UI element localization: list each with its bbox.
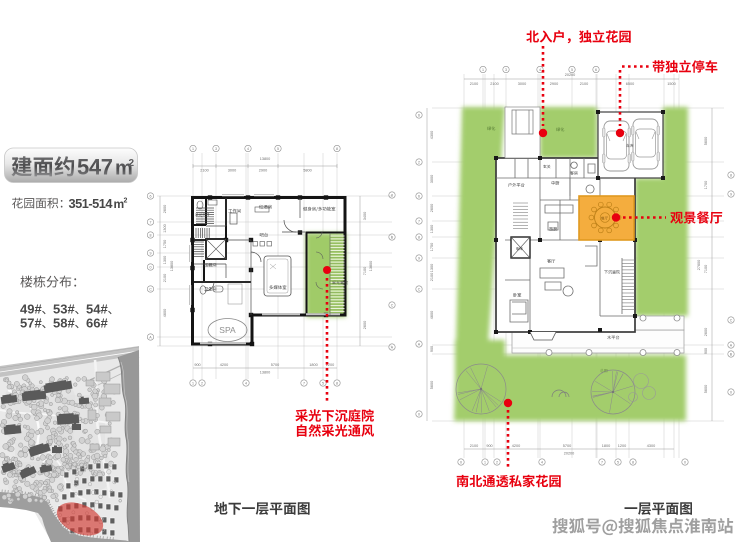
svg-text:1: 1 — [482, 68, 484, 72]
svg-text:C: C — [418, 287, 421, 291]
svg-text:C: C — [730, 318, 733, 322]
svg-text:9: 9 — [418, 256, 420, 260]
svg-text:3: 3 — [505, 68, 507, 72]
svg-text:9: 9 — [150, 251, 152, 255]
svg-text:5600: 5600 — [430, 381, 434, 389]
svg-text:27600: 27600 — [697, 260, 701, 271]
svg-text:4: 4 — [541, 460, 543, 464]
svg-text:351-514: 351-514 — [69, 196, 114, 211]
svg-text:0: 0 — [460, 460, 462, 464]
svg-text:5600: 5600 — [704, 137, 708, 145]
svg-text:8: 8 — [150, 233, 152, 237]
svg-text:5: 5 — [322, 381, 324, 385]
svg-text:2100: 2100 — [580, 82, 588, 86]
svg-text:7: 7 — [150, 220, 152, 224]
svg-text:3: 3 — [215, 147, 217, 151]
svg-text:2100: 2100 — [200, 169, 208, 173]
svg-text:6: 6 — [418, 194, 420, 198]
svg-text:1: 1 — [192, 147, 194, 151]
svg-text:4: 4 — [245, 381, 247, 385]
svg-text:13800: 13800 — [260, 157, 271, 161]
svg-text:7100: 7100 — [363, 267, 367, 275]
svg-text:4: 4 — [539, 68, 541, 72]
svg-text:66#: 66# — [86, 316, 108, 331]
svg-text:5800: 5800 — [303, 169, 311, 173]
svg-text:900: 900 — [486, 444, 492, 448]
svg-text:5: 5 — [571, 68, 573, 72]
svg-text:2900: 2900 — [259, 169, 267, 173]
svg-text:5700: 5700 — [563, 444, 571, 448]
svg-text:2600: 2600 — [363, 321, 367, 329]
svg-text:0: 0 — [730, 390, 732, 394]
svg-text:3000: 3000 — [430, 175, 434, 183]
svg-text:13800: 13800 — [369, 261, 373, 272]
svg-text:6: 6 — [418, 113, 420, 117]
svg-text:2: 2 — [129, 158, 135, 169]
svg-text:2600: 2600 — [704, 328, 708, 336]
svg-text:6500: 6500 — [626, 82, 634, 86]
svg-text:0: 0 — [418, 412, 420, 416]
svg-text:900: 900 — [430, 346, 434, 352]
svg-text:547: 547 — [77, 155, 113, 180]
svg-text:1300: 1300 — [163, 224, 167, 232]
svg-text:1300: 1300 — [430, 225, 434, 233]
svg-text:SPA: SPA — [219, 325, 236, 335]
svg-text:2100: 2100 — [490, 82, 498, 86]
svg-text:8: 8 — [336, 381, 338, 385]
svg-text:900: 900 — [194, 363, 200, 367]
svg-text:54#: 54# — [86, 302, 108, 317]
svg-text:8: 8 — [418, 235, 420, 239]
svg-text:8: 8 — [391, 193, 393, 197]
svg-text:4: 4 — [247, 147, 249, 151]
svg-text:53#: 53# — [53, 302, 75, 317]
svg-text:2100: 2100 — [470, 444, 478, 448]
svg-text:7100: 7100 — [704, 265, 708, 273]
svg-text:2: 2 — [496, 460, 498, 464]
svg-text:4200: 4200 — [220, 363, 228, 367]
svg-text:8: 8 — [336, 147, 338, 151]
svg-text:57#: 57# — [20, 316, 42, 331]
svg-text:1750: 1750 — [430, 243, 434, 251]
svg-text:3000: 3000 — [228, 169, 236, 173]
svg-text:1500: 1500 — [667, 82, 675, 86]
svg-text:3000: 3000 — [518, 82, 526, 86]
svg-text:2: 2 — [201, 381, 203, 385]
svg-text:49#: 49# — [20, 302, 42, 317]
svg-text:5: 5 — [277, 147, 279, 151]
svg-text:2: 2 — [124, 198, 128, 205]
svg-text:2: 2 — [418, 160, 420, 164]
svg-text:13800: 13800 — [170, 261, 174, 272]
svg-text:4300: 4300 — [647, 444, 655, 448]
svg-text:8: 8 — [632, 460, 634, 464]
svg-text:C: C — [391, 303, 394, 307]
svg-text:1300: 1300 — [430, 264, 434, 272]
svg-text:20200: 20200 — [564, 452, 575, 456]
svg-text:7: 7 — [601, 460, 603, 464]
svg-text:2100: 2100 — [430, 273, 434, 281]
svg-text:0: 0 — [150, 265, 152, 269]
svg-text:1800: 1800 — [309, 363, 317, 367]
svg-text:1300: 1300 — [163, 256, 167, 264]
svg-text:5600: 5600 — [704, 385, 708, 393]
svg-text:6: 6 — [150, 194, 152, 198]
svg-text:58#: 58# — [53, 316, 75, 331]
svg-text:6: 6 — [595, 68, 597, 72]
svg-text:2600: 2600 — [430, 204, 434, 212]
svg-text:4300: 4300 — [430, 131, 434, 139]
svg-text:2100: 2100 — [470, 82, 478, 86]
svg-text:1750: 1750 — [163, 240, 167, 248]
svg-text:20200: 20200 — [565, 73, 576, 77]
svg-text:2900: 2900 — [550, 82, 558, 86]
svg-text:8: 8 — [730, 173, 732, 177]
svg-text:7: 7 — [303, 381, 305, 385]
svg-text:4600: 4600 — [163, 309, 167, 317]
svg-text:1700: 1700 — [704, 181, 708, 189]
svg-text:13800: 13800 — [260, 371, 271, 375]
svg-text:C: C — [149, 287, 152, 291]
svg-text:1: 1 — [484, 460, 486, 464]
svg-text:900: 900 — [704, 348, 708, 354]
svg-text:1200: 1200 — [618, 444, 626, 448]
svg-text:9: 9 — [730, 192, 732, 196]
svg-text:5700: 5700 — [271, 363, 279, 367]
svg-text:5: 5 — [617, 460, 619, 464]
svg-text:4200: 4200 — [512, 444, 520, 448]
svg-text:0: 0 — [684, 460, 686, 464]
svg-text:2100: 2100 — [163, 274, 167, 282]
svg-text:4600: 4600 — [430, 311, 434, 319]
svg-text:2600: 2600 — [163, 205, 167, 213]
svg-text:3400: 3400 — [363, 212, 367, 220]
svg-text:1: 1 — [192, 381, 194, 385]
svg-text:1800: 1800 — [602, 444, 610, 448]
svg-text:7: 7 — [418, 219, 420, 223]
